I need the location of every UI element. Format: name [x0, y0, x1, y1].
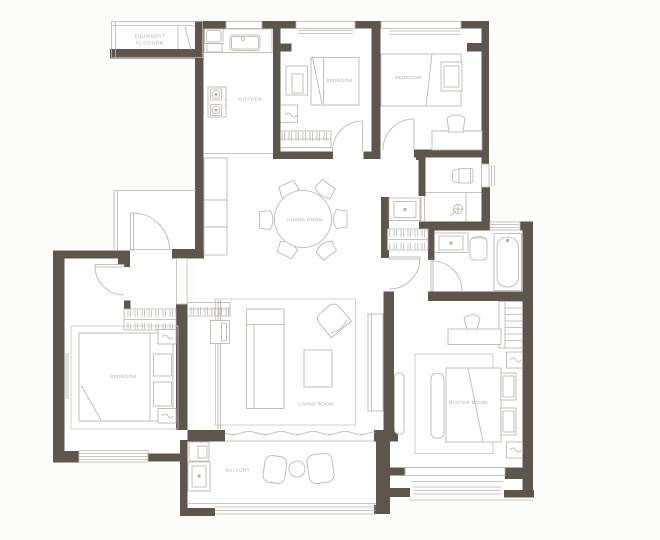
- svg-text:LIVING ROOM: LIVING ROOM: [299, 402, 334, 407]
- svg-text:BEDROOM: BEDROOM: [395, 75, 421, 80]
- svg-text:BALCONY: BALCONY: [226, 468, 250, 473]
- svg-text:EQUIPMENT: EQUIPMENT: [135, 34, 166, 39]
- svg-text:KITCHEN: KITCHEN: [239, 97, 262, 102]
- svg-text:BEDROOM: BEDROOM: [326, 78, 352, 83]
- svg-text:BEDROOM: BEDROOM: [110, 374, 136, 379]
- svg-text:MASTER ROOM: MASTER ROOM: [449, 400, 488, 405]
- svg-text:PLATFORM: PLATFORM: [136, 41, 164, 46]
- svg-text:DINING ROOM: DINING ROOM: [287, 217, 323, 222]
